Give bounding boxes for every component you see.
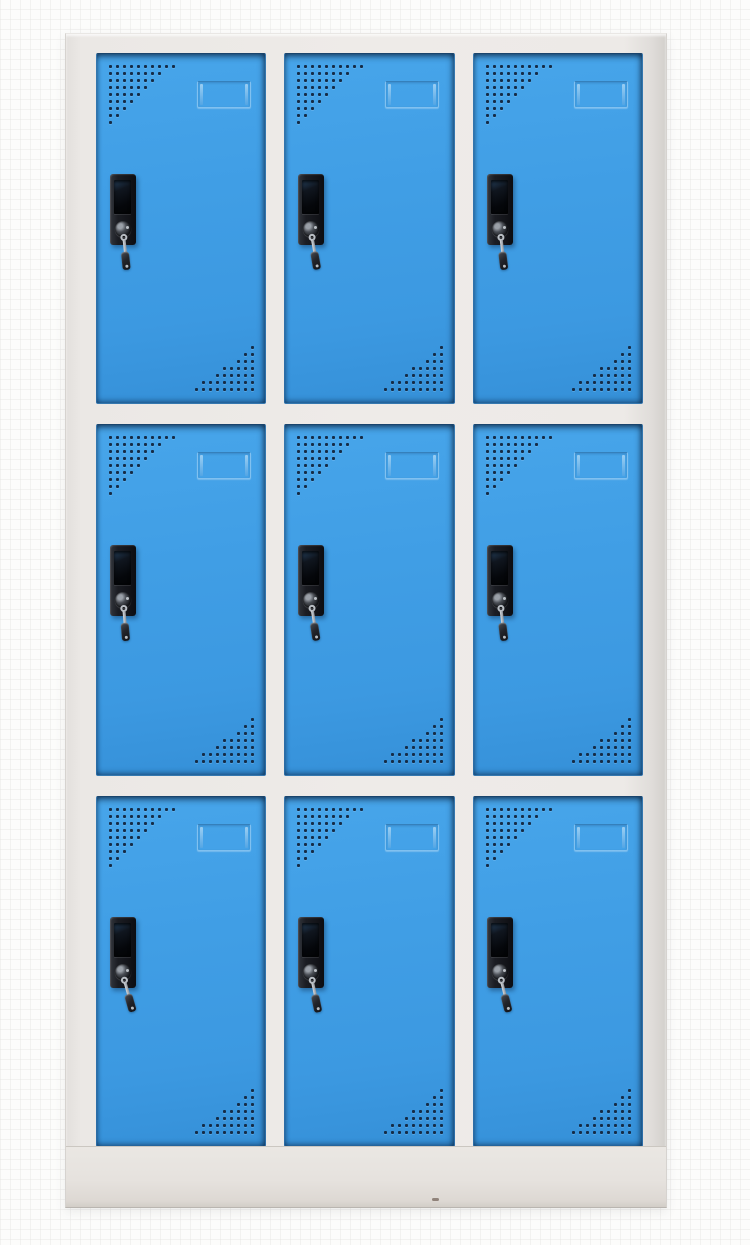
label-card-holder [574,824,628,851]
label-card-holder [197,452,251,479]
vent-grille-top-left [109,808,175,867]
vent-grille-top-left [486,65,552,124]
hanging-key [306,233,322,270]
lock-handle-recess [302,551,319,585]
hanging-key [306,605,322,642]
hanging-key [495,975,513,1012]
cam-lock [487,174,513,245]
label-card-holder [385,452,439,479]
lock-handle-recess [114,923,131,957]
vent-grille-top-left [486,808,552,867]
key-head [124,993,137,1013]
label-card-holder [385,81,439,108]
hanging-key [118,975,138,1012]
vent-grille-top-left [297,436,363,495]
label-card-holder [574,81,628,108]
cam-lock [487,545,513,616]
cam-lock [298,174,324,245]
hanging-key [495,605,509,642]
vent-grille-top-left [297,808,363,867]
vent-grille-bottom-right [572,346,631,391]
cabinet-base [66,1146,666,1207]
lock-handle-recess [114,551,131,585]
lock-handle-recess [491,923,508,957]
locker-door [284,53,454,404]
vent-grille-top-left [297,65,363,124]
cam-lock [487,917,513,988]
vent-grille-bottom-right [195,346,254,391]
label-card-holder [197,824,251,851]
label-card-holder [197,81,251,108]
locker-door [96,53,266,404]
hanging-key [118,233,132,270]
key-head [498,251,508,270]
locker-cabinet [65,33,667,1208]
vent-grille-top-left [109,65,175,124]
hanging-key [495,233,509,270]
key-head [311,993,323,1012]
key-head [310,622,321,641]
key-head [121,623,131,642]
door-grid [96,53,643,1147]
key-head [121,251,131,270]
cam-lock [110,917,136,988]
lock-handle-recess [302,180,319,214]
vent-grille-bottom-right [384,718,443,763]
cam-lock [298,917,324,988]
cam-lock [110,174,136,245]
key-head [500,993,512,1012]
vent-grille-top-left [109,436,175,495]
locker-door [96,796,266,1147]
hanging-key [118,605,131,642]
key-head [311,251,322,270]
product-photo [0,0,750,1245]
label-card-holder [385,824,439,851]
locker-door [473,796,643,1147]
key-head [498,623,508,642]
cam-lock [298,545,324,616]
lock-handle-recess [302,923,319,957]
vent-grille-bottom-right [384,1089,443,1134]
label-card-holder [574,452,628,479]
lock-handle-recess [114,180,131,214]
locker-door [284,424,454,775]
hanging-key [306,976,323,1013]
vent-grille-bottom-right [572,1089,631,1134]
vent-grille-bottom-right [195,1089,254,1134]
vent-grille-bottom-right [384,346,443,391]
locker-door [473,424,643,775]
vent-grille-bottom-right [195,718,254,763]
vent-grille-bottom-right [572,718,631,763]
lock-handle-recess [491,551,508,585]
locker-door [284,796,454,1147]
locker-door [96,424,266,775]
lock-handle-recess [491,180,508,214]
cam-lock [110,545,136,616]
vent-grille-top-left [486,436,552,495]
locker-door [473,53,643,404]
